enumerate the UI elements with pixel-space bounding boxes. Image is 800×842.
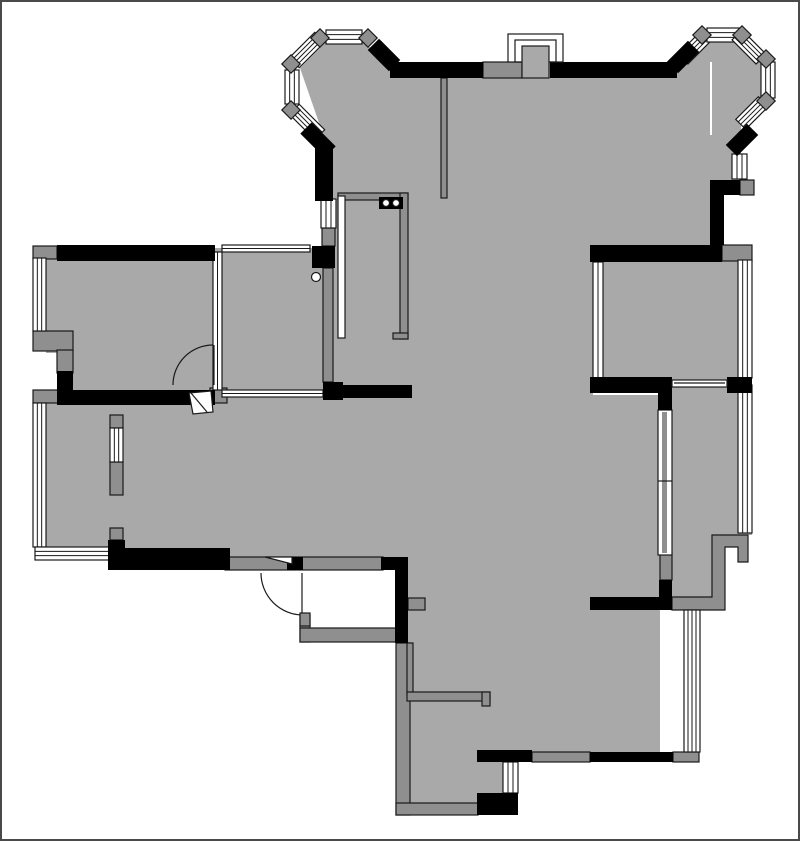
stove-burner	[393, 200, 400, 207]
window-tr-below-bay	[732, 154, 747, 179]
wall-gray-cap-bedroom-top	[33, 246, 57, 259]
wall-black-glass-head	[658, 393, 672, 410]
wall-gray-partition-a	[110, 415, 123, 428]
baywindow-tl-left	[285, 70, 299, 104]
window-living-left	[33, 403, 46, 547]
wall-black-mid-horizontal	[343, 385, 412, 398]
wall-black-bottom	[590, 752, 673, 762]
floor-plan-svg	[0, 0, 800, 842]
door-jamb-entry	[300, 613, 310, 626]
floor-bedroom-lower	[73, 350, 218, 395]
wall-black-top-left	[390, 62, 483, 78]
baywindow-tr-right	[761, 62, 775, 98]
wall-black-balcony-corner	[727, 377, 752, 393]
wall-black-tr-corner	[710, 180, 740, 195]
wall-black-partition-stub	[659, 580, 672, 597]
window-balcony-right	[738, 260, 752, 378]
wall-black-entry-vertical	[395, 557, 408, 643]
window-hall-column	[321, 199, 336, 228]
wall-gray-partition-b	[110, 462, 123, 495]
wall-black-corner-block	[312, 246, 335, 268]
window-midroom-top	[222, 245, 310, 252]
wall-black-right-room-bottom	[590, 597, 672, 610]
wall-black-living-bottom	[112, 548, 230, 570]
wall-gray-entry-band	[225, 557, 383, 570]
wall-gray-cap-balcony	[722, 245, 752, 261]
duct-wall-foot	[393, 333, 408, 339]
floor-plan-page	[0, 0, 800, 842]
window-partition-mid	[110, 428, 123, 462]
wall-black-balcony-top	[590, 245, 722, 262]
wall-black-left-column	[315, 146, 333, 201]
wall-gray-left-step-b	[57, 350, 73, 373]
wall-black-porch-block	[477, 793, 518, 815]
floor-balcony-right	[585, 250, 752, 390]
wall-black-porch-bar	[477, 750, 532, 762]
duct-wall-right	[400, 193, 408, 339]
wall-gray-porch-inner-v	[407, 643, 413, 695]
wall-black-tr-vertical	[710, 195, 724, 245]
wall-gray-bottom-seg	[532, 752, 590, 762]
glass-partition-core	[662, 412, 667, 553]
niche-core	[522, 46, 549, 78]
wall-gray-cap-living-top	[33, 390, 58, 403]
window-right-lower	[738, 385, 752, 533]
wall-gray-porch-bottom	[396, 803, 478, 815]
wall-gray-left-step-a	[33, 331, 73, 351]
wall-gray-bottom-cap	[673, 752, 699, 762]
floor-middle-room	[215, 248, 330, 397]
wall-gray-porch-inner-h	[407, 692, 490, 701]
baywindow-tl-top	[326, 30, 362, 44]
wall-gray-vertical	[323, 268, 333, 382]
glass-balcony-left	[593, 262, 603, 378]
wall-gray-stack-upper	[322, 228, 335, 246]
wall-gray-cap-topright	[740, 180, 754, 195]
wall-gray-glass-block	[660, 553, 672, 580]
window-bottom-right	[684, 610, 700, 752]
floor-center-upper	[325, 135, 712, 193]
wall-gray-top-inset	[483, 62, 522, 78]
wall-black-bedroom-top	[57, 245, 215, 261]
wall-gray-entry-bottom	[300, 628, 397, 642]
hinge-dot	[312, 273, 321, 282]
window-midroom-bottom	[222, 390, 323, 397]
duct-wall-left	[338, 196, 345, 338]
wall-gray-partition-c	[110, 528, 123, 540]
door-arc-entry	[261, 573, 303, 615]
window-living-bottom	[35, 547, 112, 560]
window-bedroom-left	[33, 258, 46, 331]
floor-center	[333, 253, 593, 400]
window-porch-right	[503, 762, 518, 793]
wall-black-bedroom-left	[57, 371, 73, 392]
wall-gray-stub	[408, 598, 425, 610]
wall-black-balcony-bottom	[590, 377, 672, 393]
wall-black-top-right	[550, 62, 677, 78]
stove-burner	[383, 200, 390, 207]
wall-black-column-foot	[323, 382, 343, 400]
screen-partition-line	[441, 78, 447, 198]
wall-gray-porch-hook	[482, 692, 490, 706]
